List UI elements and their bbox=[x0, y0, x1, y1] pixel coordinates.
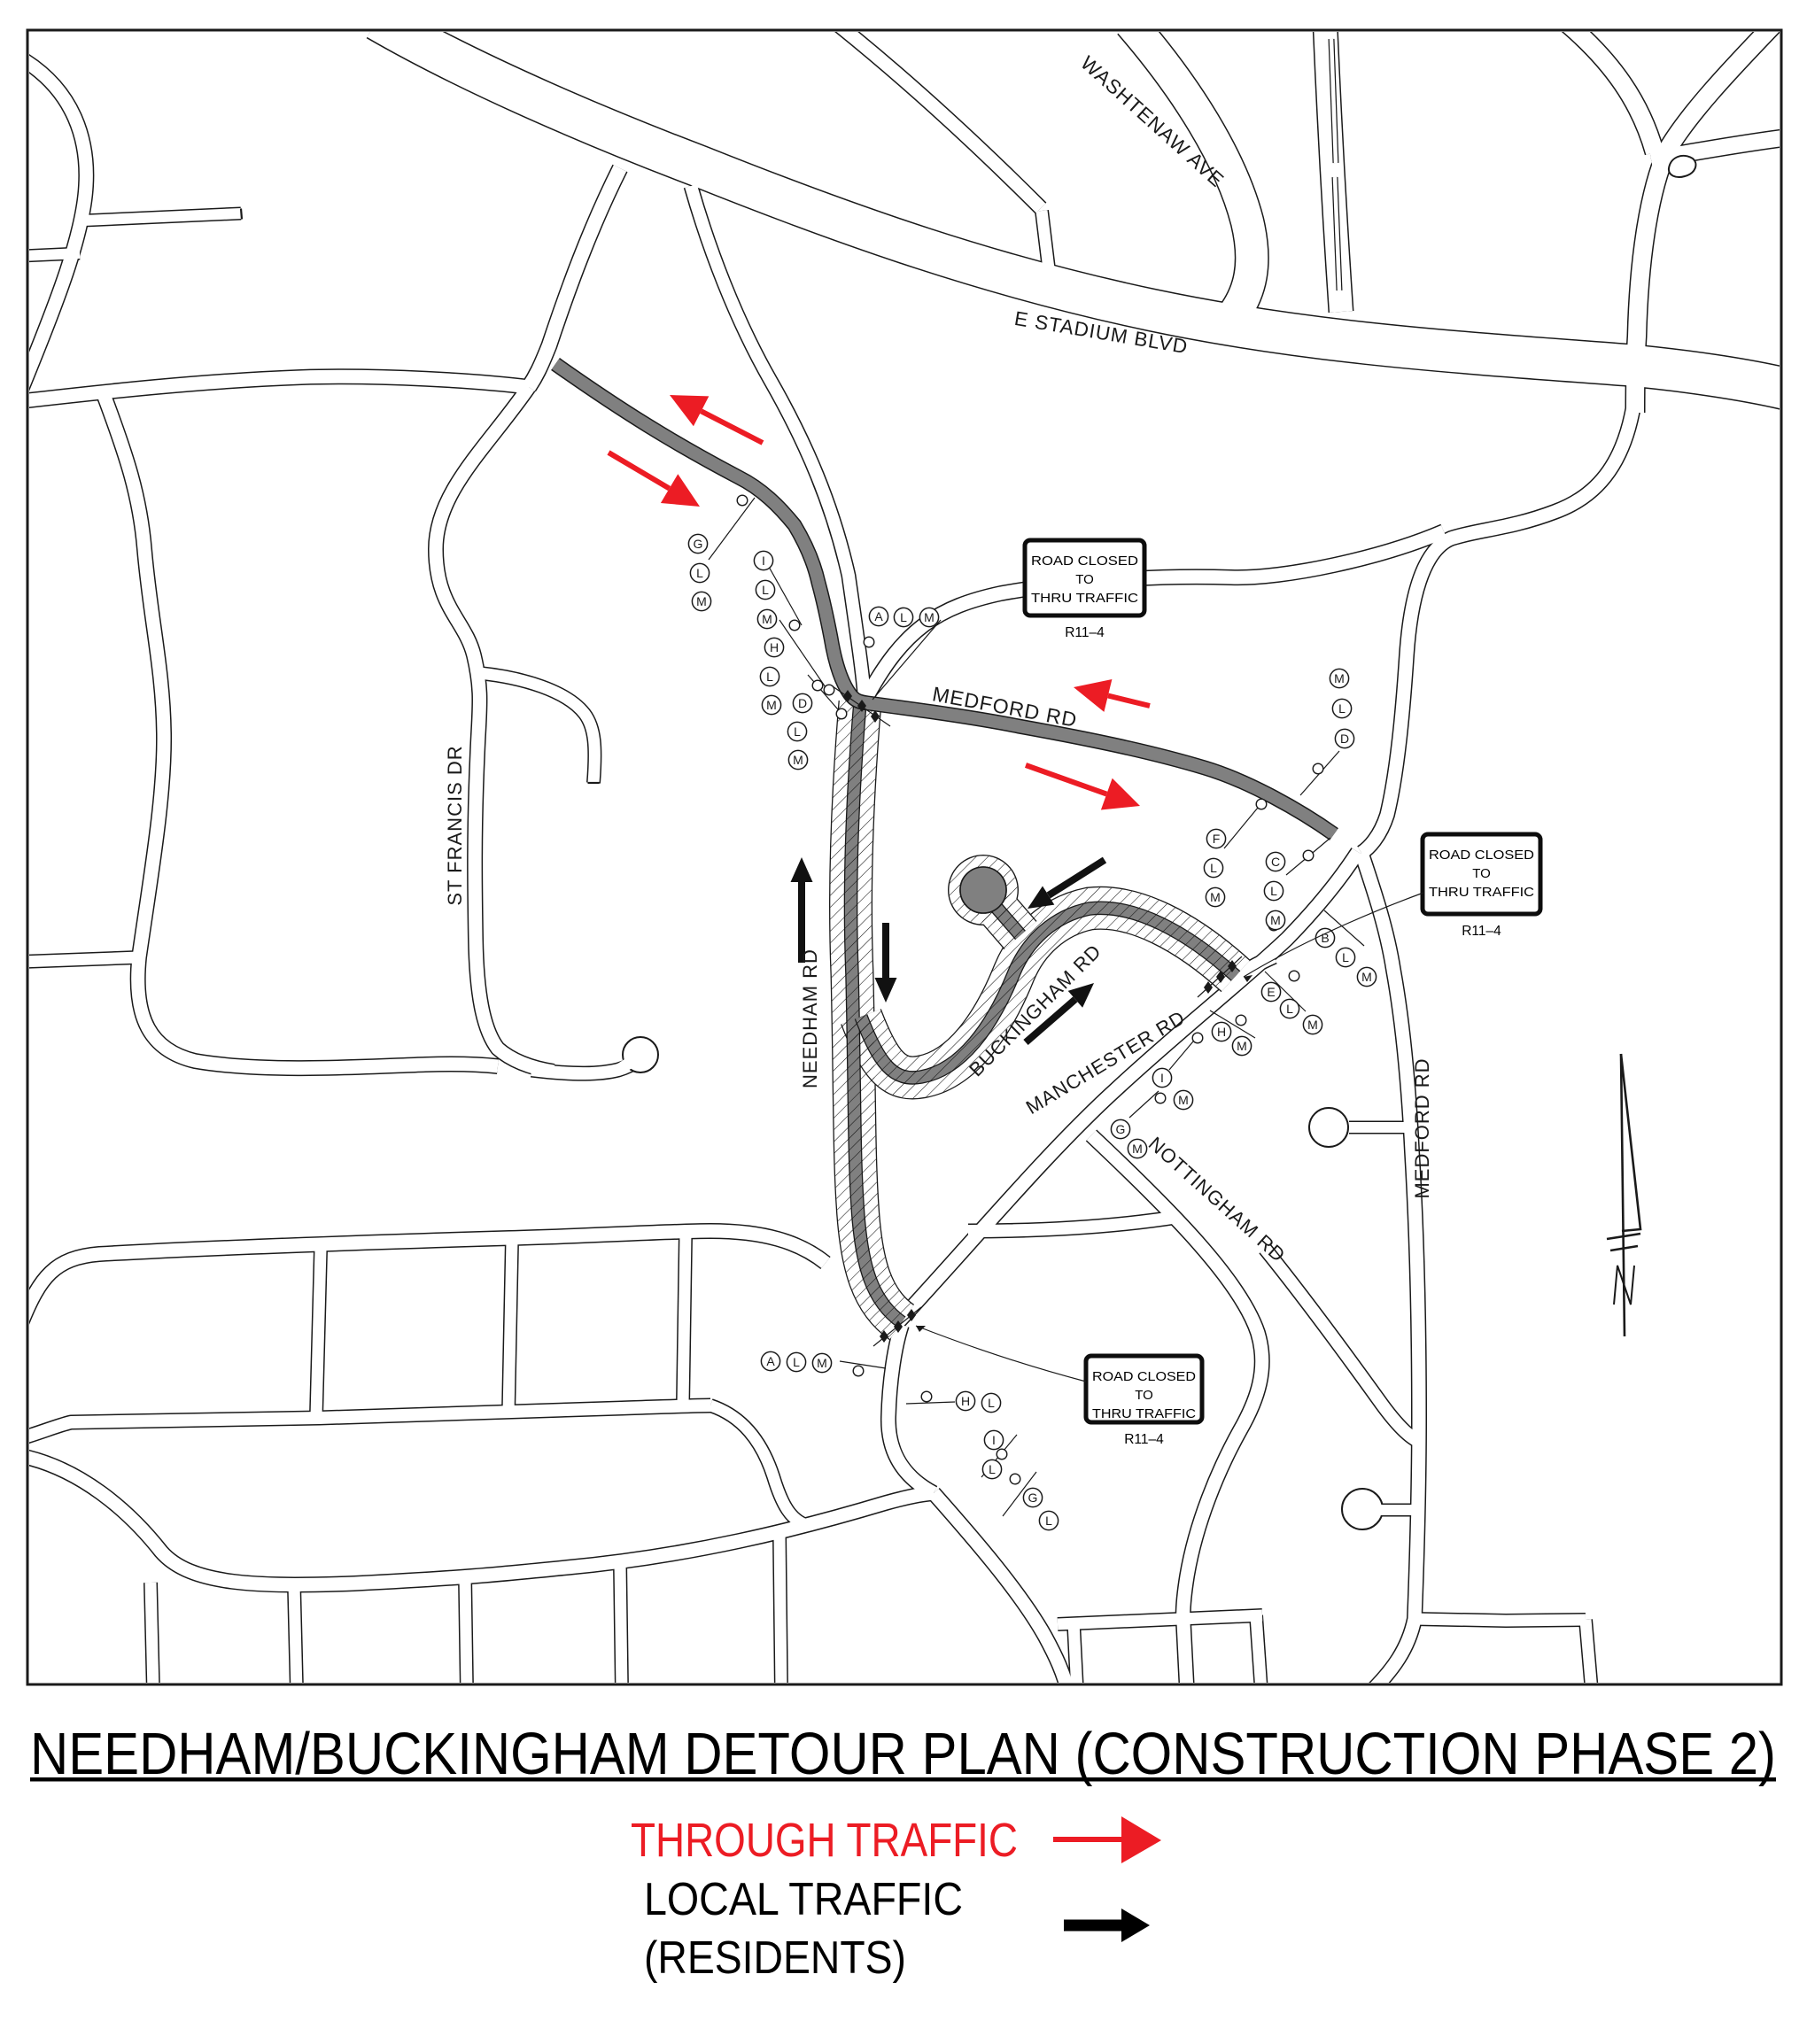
svg-text:L: L bbox=[1045, 1514, 1052, 1528]
svg-text:M: M bbox=[1178, 1093, 1189, 1107]
svg-text:ROAD CLOSED: ROAD CLOSED bbox=[1092, 1369, 1196, 1384]
svg-text:LOCAL TRAFFIC: LOCAL TRAFFIC bbox=[644, 1874, 963, 1925]
svg-text:L: L bbox=[1338, 701, 1346, 716]
svg-text:F: F bbox=[1213, 832, 1221, 846]
svg-text:M: M bbox=[1334, 671, 1345, 685]
svg-text:A: A bbox=[874, 609, 883, 623]
svg-text:L: L bbox=[1286, 1002, 1293, 1016]
svg-text:I: I bbox=[1160, 1071, 1164, 1085]
svg-text:M: M bbox=[696, 594, 707, 608]
svg-text:M: M bbox=[1210, 890, 1221, 904]
svg-text:H: H bbox=[770, 640, 779, 654]
svg-text:M: M bbox=[766, 698, 777, 712]
svg-text:L: L bbox=[1210, 861, 1217, 875]
svg-text:H: H bbox=[961, 1394, 970, 1408]
svg-text:ST FRANCIS DR: ST FRANCIS DR bbox=[444, 745, 466, 905]
svg-text:I: I bbox=[762, 554, 765, 568]
svg-text:L: L bbox=[766, 670, 773, 684]
svg-text:L: L bbox=[762, 583, 769, 597]
svg-text:R11–4: R11–4 bbox=[1124, 1432, 1164, 1447]
svg-text:L: L bbox=[988, 1396, 995, 1410]
svg-text:L: L bbox=[900, 610, 907, 624]
svg-text:E: E bbox=[1267, 985, 1275, 999]
svg-text:ROAD CLOSED: ROAD CLOSED bbox=[1031, 554, 1138, 569]
svg-text:A: A bbox=[766, 1354, 775, 1368]
svg-text:M: M bbox=[924, 610, 935, 624]
svg-text:L: L bbox=[793, 1355, 800, 1369]
svg-text:NEEDHAM RD: NEEDHAM RD bbox=[799, 948, 821, 1088]
svg-text:ROAD CLOSED: ROAD CLOSED bbox=[1429, 848, 1534, 863]
svg-text:L: L bbox=[1270, 884, 1277, 898]
svg-text:G: G bbox=[1116, 1122, 1126, 1136]
svg-text:R11–4: R11–4 bbox=[1462, 924, 1501, 939]
svg-text:M: M bbox=[817, 1356, 827, 1370]
svg-text:TO: TO bbox=[1075, 572, 1094, 587]
svg-text:L: L bbox=[696, 566, 703, 580]
svg-text:M: M bbox=[1237, 1039, 1247, 1053]
svg-text:NEEDHAM/BUCKINGHAM DETOUR PLAN: NEEDHAM/BUCKINGHAM DETOUR PLAN (CONSTRUC… bbox=[30, 1721, 1776, 1787]
svg-text:L: L bbox=[794, 724, 801, 739]
svg-text:H: H bbox=[1217, 1025, 1226, 1039]
svg-text:THROUGH TRAFFIC: THROUGH TRAFFIC bbox=[631, 1814, 1018, 1867]
svg-text:G: G bbox=[694, 537, 703, 551]
svg-text:C: C bbox=[1271, 855, 1280, 869]
svg-text:G: G bbox=[1028, 1490, 1038, 1505]
svg-text:TO: TO bbox=[1135, 1388, 1153, 1403]
svg-text:MEDFORD RD: MEDFORD RD bbox=[1411, 1057, 1433, 1198]
svg-text:L: L bbox=[1342, 950, 1349, 964]
svg-text:M: M bbox=[1132, 1142, 1143, 1156]
svg-text:R11–4: R11–4 bbox=[1065, 625, 1105, 640]
svg-text:TO: TO bbox=[1472, 866, 1491, 881]
svg-text:M: M bbox=[793, 753, 803, 767]
svg-text:THRU TRAFFIC: THRU TRAFFIC bbox=[1429, 885, 1534, 900]
svg-text:M: M bbox=[1361, 970, 1372, 984]
svg-text:THRU TRAFFIC: THRU TRAFFIC bbox=[1031, 591, 1138, 606]
svg-text:M: M bbox=[762, 612, 772, 626]
svg-text:D: D bbox=[798, 696, 807, 710]
svg-text:D: D bbox=[1340, 732, 1349, 746]
svg-text:M: M bbox=[1307, 1018, 1318, 1032]
svg-text:I: I bbox=[992, 1433, 996, 1447]
svg-text:M: M bbox=[1270, 913, 1281, 927]
svg-text:THRU TRAFFIC: THRU TRAFFIC bbox=[1092, 1406, 1196, 1421]
svg-text:(RESIDENTS): (RESIDENTS) bbox=[644, 1932, 906, 1984]
svg-text:L: L bbox=[989, 1462, 996, 1476]
